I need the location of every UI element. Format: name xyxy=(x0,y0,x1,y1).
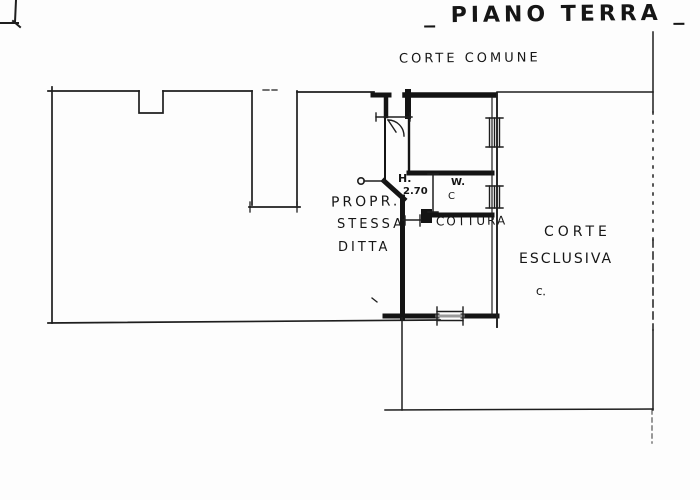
label-corte-esclusiva-line2: ESCLUSIVA xyxy=(519,252,613,266)
wall-pier xyxy=(421,209,432,223)
label-ditta: DITTA xyxy=(338,241,390,254)
page-title: _ PIANO TERRA _ xyxy=(424,3,689,28)
label-stessa: STESSA xyxy=(337,218,405,231)
label-corte-esclusiva-line1: CORTE xyxy=(544,225,611,239)
wc-partition xyxy=(428,174,438,212)
window-right-lower xyxy=(486,186,503,208)
window-bottom xyxy=(437,307,463,325)
courtyard-bottom-line xyxy=(385,409,653,410)
kitchen-opening xyxy=(403,215,421,226)
label-corte-comune: CORTE COMUNE xyxy=(399,51,541,65)
label-wc-line2: C xyxy=(448,192,455,202)
label-height-value: 2.70 xyxy=(403,187,428,197)
label-wc-line1: W. xyxy=(451,178,465,188)
label-cottura: COTTURA xyxy=(436,215,507,228)
top-wall-notch xyxy=(139,91,163,113)
window-right-upper xyxy=(486,118,503,147)
hall-stub xyxy=(358,178,384,184)
floor-plan-page: _ PIANO TERRA _ CORTE COMUNE PROPR. STES… xyxy=(0,0,700,500)
label-courtyard-mark: c. xyxy=(535,284,547,297)
corner-fragment xyxy=(0,0,20,27)
label-propr: PROPR. xyxy=(331,194,401,209)
label-height: H. xyxy=(398,173,411,184)
recess xyxy=(249,90,300,212)
entry-door xyxy=(376,113,412,136)
